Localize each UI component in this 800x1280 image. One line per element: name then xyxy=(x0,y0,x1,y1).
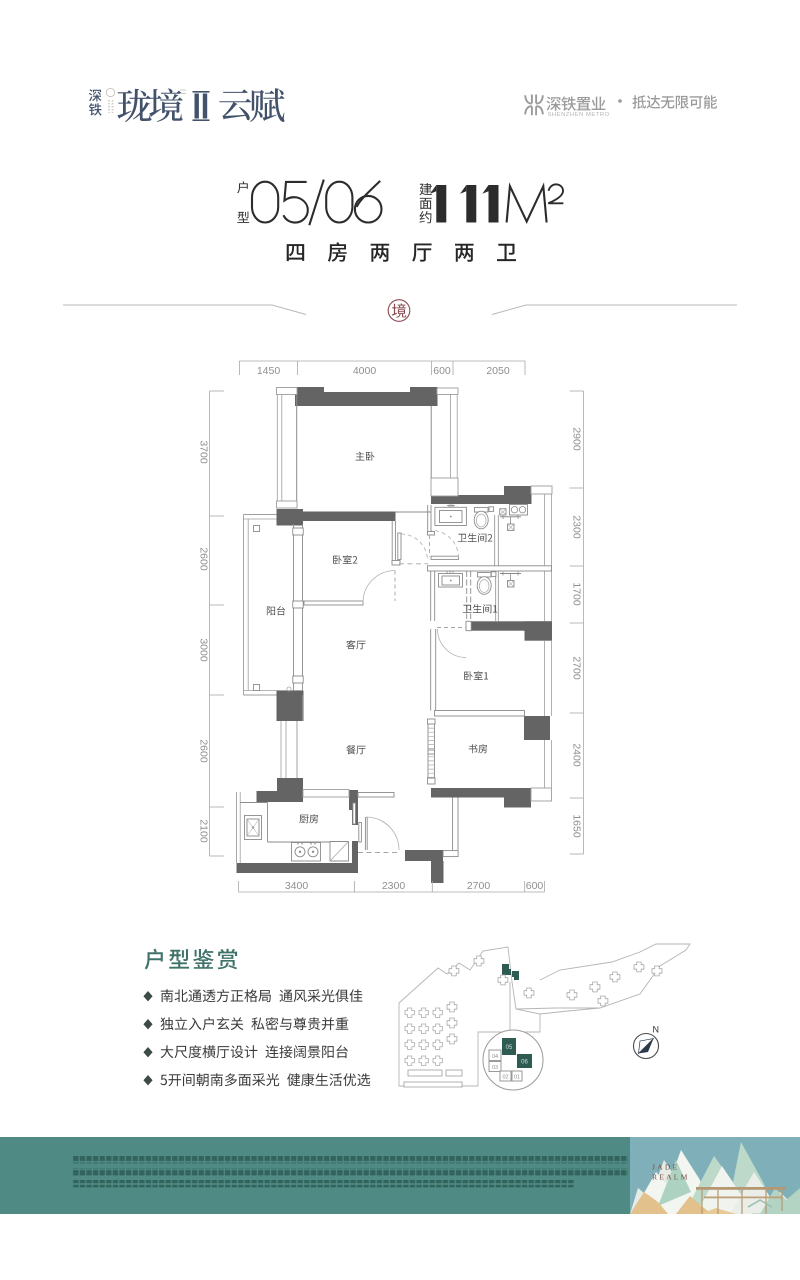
svg-text:4000: 4000 xyxy=(353,365,377,377)
svg-text:2700: 2700 xyxy=(571,656,583,680)
svg-text:600: 600 xyxy=(526,880,544,892)
svg-text:02: 02 xyxy=(502,1075,508,1081)
svg-text:2300: 2300 xyxy=(571,515,583,539)
svg-text:2700: 2700 xyxy=(467,880,491,892)
svg-text:2050: 2050 xyxy=(486,365,510,377)
svg-text:JADE: JADE xyxy=(652,1163,679,1172)
svg-text:01: 01 xyxy=(514,1075,520,1081)
svg-text:N: N xyxy=(653,1025,660,1035)
svg-text:REALM: REALM xyxy=(652,1173,690,1182)
svg-text:2400: 2400 xyxy=(571,743,583,767)
svg-text:03: 03 xyxy=(492,1065,498,1071)
svg-text:SHENZHEN METRO: SHENZHEN METRO xyxy=(548,112,610,118)
svg-text:2600: 2600 xyxy=(198,739,210,763)
svg-text:1450: 1450 xyxy=(257,365,281,377)
svg-text:2300: 2300 xyxy=(382,880,406,892)
svg-text:3400: 3400 xyxy=(285,880,309,892)
svg-text:2100: 2100 xyxy=(198,819,210,843)
svg-text:2900: 2900 xyxy=(571,427,583,451)
svg-text:1650: 1650 xyxy=(571,814,583,838)
svg-text:1700: 1700 xyxy=(571,582,583,606)
svg-text:04: 04 xyxy=(492,1054,498,1060)
svg-text:06: 06 xyxy=(521,1060,528,1066)
svg-text:2600: 2600 xyxy=(198,547,210,571)
svg-text:05: 05 xyxy=(506,1045,513,1051)
svg-text:3700: 3700 xyxy=(198,440,210,464)
svg-text:600: 600 xyxy=(433,365,451,377)
svg-text:3000: 3000 xyxy=(198,638,210,662)
